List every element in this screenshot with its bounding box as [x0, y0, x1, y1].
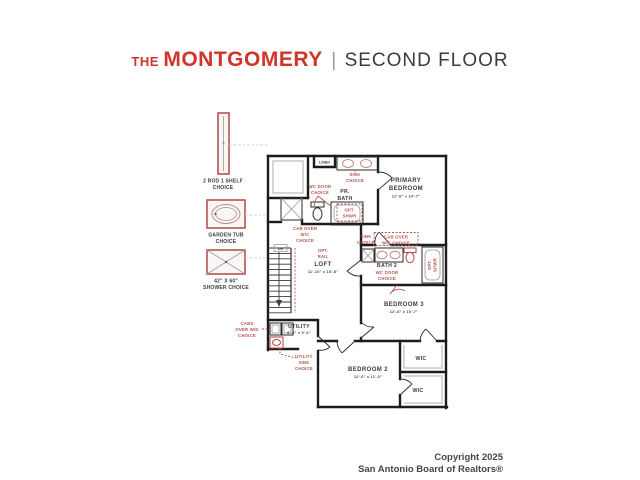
shower-option-icon: [207, 250, 245, 274]
room-label-primary-bedroom-line2: BEDROOM: [389, 186, 423, 192]
dims-utility: 8'-4" x 5'-6": [287, 330, 311, 335]
stairs-dn-label: DN: [278, 247, 284, 251]
copyright-notice: Copyright 2025 San Antonio Board of Real…: [0, 452, 503, 475]
pr-bath-toilet-icon: [311, 202, 324, 220]
label-opt-rail-line2: RAIL: [318, 254, 329, 259]
rod-shelf-option-icon: [218, 113, 229, 174]
label-opt-shwr-bath1-line2: SHWR: [343, 214, 358, 219]
garden-tub-option-icon: [207, 200, 245, 228]
room-label-pr-bath-line2: BATH: [337, 196, 352, 202]
bath2-closet: [362, 249, 374, 262]
shower-label-line2: SHOWER CHOICE: [203, 285, 249, 291]
label-opt-shwr-bath1-line1: OPT.: [344, 208, 354, 213]
label-cabs-over-wd-line1: CABS: [241, 321, 254, 326]
label-wc-door-choice-bath2-line2: CHOICE: [378, 276, 396, 281]
room-label-bedroom2: BEDROOM 2: [348, 367, 388, 373]
room-label-bath2: BATH 2: [377, 263, 397, 269]
garden-tub-label-line2: CHOICE: [216, 239, 237, 245]
copyright-line2: San Antonio Board of Realtors®: [0, 464, 503, 476]
label-sink-choice-bath2-line2: CHOICE: [357, 240, 375, 245]
room-label-pr-bath-line1: PR.: [340, 189, 350, 195]
garden-tub-label-line1: GARDEN TUB: [208, 233, 244, 239]
label-cab-over-wc-bath1-line1: CAB OVER: [293, 226, 318, 231]
floorplan-svg: 2 ROD 1 SHELF CHOICE GARDEN TUB CHOICE 4…: [185, 98, 455, 418]
room-label-wic2: WIC: [413, 388, 424, 394]
room-label-primary-bedroom-line1: PRIMARY: [391, 178, 421, 184]
label-wc-door-choice-bath1-line2: CHOICE: [311, 190, 329, 195]
title-prefix: THE: [131, 54, 159, 69]
title-floor-name: SECOND FLOOR: [345, 50, 509, 71]
pr-bath-vanity-sinks: [337, 157, 378, 170]
dims-loft: 11'-10" x 15'-8": [308, 269, 339, 274]
dims-bedroom2: 12'-0" x 11'-0": [354, 374, 382, 379]
label-utility-sink-line3: CHOICE: [295, 366, 313, 371]
label-opt-shwr-bath2: OPT. SHWR: [427, 257, 438, 272]
label-sink-choice-bath1-line1: SINK: [349, 172, 361, 177]
label-cab-over-wc-bath2-line1: CAB OVER: [384, 235, 409, 240]
floorplan: 2 ROD 1 SHELF CHOICE GARDEN TUB CHOICE 4…: [185, 98, 455, 418]
shower-label-line1: 42" X 60": [214, 279, 238, 285]
label-cabs-over-wd-line2: OVER W/D: [235, 327, 258, 332]
svg-text:SHWR: SHWR: [433, 257, 438, 272]
label-opt-rail-line1: OPT.: [318, 248, 328, 253]
svg-text:OPT.: OPT.: [427, 260, 432, 270]
label-sink-choice-bath2-line1: SINK: [360, 234, 372, 239]
room-label-bedroom3: BEDROOM 3: [384, 302, 424, 308]
label-cab-over-wc-bath1-line3: CHOICE: [296, 238, 314, 243]
label-utility-sink-line1: UTILITY: [295, 354, 313, 359]
label-cab-over-wc-bath2-line2: W/C CHOICE: [382, 241, 410, 246]
bath2-vanity-sinks: [375, 248, 403, 262]
pr-bath-closet: [281, 198, 302, 220]
dims-bedroom3: 12'-6" x 10'-7": [390, 309, 418, 314]
room-label-linen: LINEN: [319, 161, 330, 165]
label-sink-choice-bath1-line2: CHOICE: [346, 178, 364, 183]
title-plan-name: MONTGOMERY: [163, 48, 322, 71]
bath2-toilet-icon: [404, 248, 416, 263]
room-label-loft: LOFT: [314, 262, 331, 268]
rod-shelf-label-line2: CHOICE: [213, 185, 234, 191]
label-utility-sink-line2: SINK: [298, 360, 310, 365]
title-separator: |: [327, 50, 340, 71]
utility-sink-icon: [270, 337, 283, 348]
open-area-inset: [273, 161, 303, 193]
dims-primary-bedroom: 12'-6" x 14'-7": [392, 194, 420, 199]
rod-shelf-label-line1: 2 ROD 1 SHELF: [203, 179, 243, 185]
room-label-wic1: WIC: [416, 356, 427, 362]
label-wc-door-choice-bath1-line1: WC DOOR: [309, 184, 332, 189]
copyright-line1: Copyright 2025: [0, 452, 503, 464]
label-cabs-over-wd-line3: CHOICE: [238, 333, 256, 338]
stairs: [268, 245, 291, 314]
label-wc-door-choice-bath2-line1: WC DOOR: [376, 270, 399, 275]
page-title: THE MONTGOMERY | SECOND FLOOR: [0, 48, 640, 72]
label-cab-over-wc-bath1-line2: W/C: [301, 232, 310, 237]
